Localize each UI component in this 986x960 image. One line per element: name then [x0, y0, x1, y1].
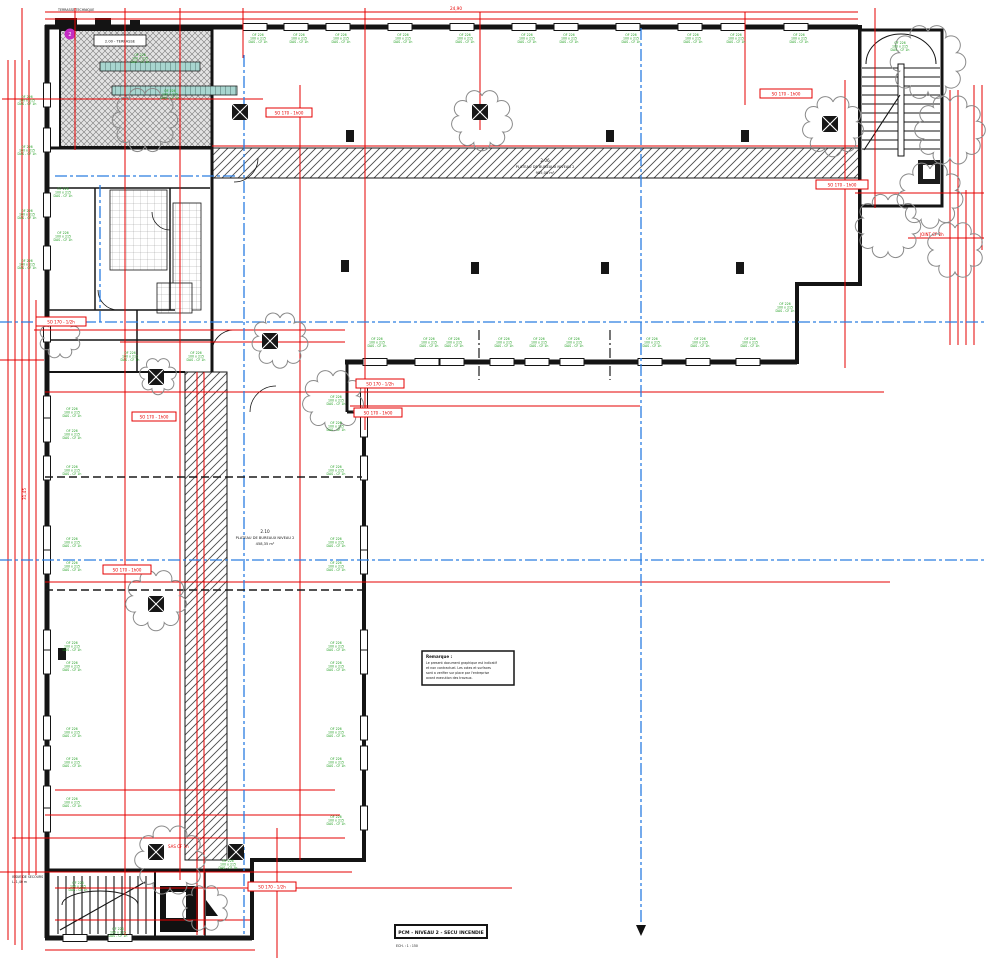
exit-label-2: L. 1,40 m — [12, 880, 27, 884]
note-line: et non contractuel. Les cotes et surface… — [426, 666, 491, 670]
window-label: OF 226100 x 215DAS - CF 1h — [518, 33, 537, 44]
window-marker — [415, 359, 439, 366]
note-box: Remarque : Le present document graphique… — [422, 651, 514, 685]
window-marker — [44, 716, 51, 740]
note-line: sont a verifier sur place par l'entrepri… — [426, 671, 489, 675]
title-block: PCM - NIVEAU 2 - SECU INCENDIE ECH. : 1 … — [395, 925, 487, 948]
window-label: OF 226100 x 215DAS - CF 1h — [420, 337, 439, 348]
column-marker — [741, 130, 749, 142]
window-label: OF 226100 x 215DAS - CF 1h — [622, 33, 641, 44]
window-label: OF 226100 x 215DAS - CF 1h — [790, 33, 809, 44]
fire-rating-label: SO 170 - 1h00 — [113, 567, 142, 572]
window-marker — [326, 24, 350, 31]
window-label: OF 226100 x 215DAS - CF 1h — [69, 881, 88, 892]
window-label: OF 226100 x 215DAS - CF 1h — [63, 537, 82, 548]
window-marker — [450, 24, 474, 31]
room-area: 458,35 m² — [256, 542, 275, 546]
plan-title: PCM - NIVEAU 2 - SECU INCENDIE — [398, 930, 483, 936]
column-marker — [606, 130, 614, 142]
fire-rating-label: SO 170 - 1h00 — [772, 91, 801, 96]
window-label: OF 226100 x 215DAS - CF 1h — [219, 859, 238, 870]
window-label: OF 226100 x 215DAS - CF 1h — [643, 337, 662, 348]
window-label: OF 226100 x 215DAS - CF 1h — [18, 145, 37, 156]
window-labels-wing-right: OF 226100 x 215DAS - CF 1hOF 226100 x 21… — [327, 395, 346, 826]
fire-rating-label: SO 170 - 1h00 — [364, 410, 393, 415]
window-label: OF 226100 x 215DAS - CF 1h — [63, 465, 82, 476]
window-marker — [784, 24, 808, 31]
fire-rating-label: SO 170 - 1/2h — [366, 381, 394, 386]
window-label: OF 226100 x 215DAS - CF 1h — [327, 727, 346, 738]
window-label: OF 226100 x 215DAS - CF 1h — [741, 337, 760, 348]
window-label: OF 226100 x 215DAS - CF 1h — [327, 465, 346, 476]
window-label: OF 226100 x 215DAS - CF 1h — [249, 33, 268, 44]
window-label: OF 226100 x 215DAS - CF 1h — [560, 33, 579, 44]
floor-plan-canvas: 2 2.00 - TERRASSE — [0, 0, 986, 960]
window-marker — [44, 550, 51, 574]
window-marker — [44, 808, 51, 832]
window-marker — [361, 746, 368, 770]
window-marker — [678, 24, 702, 31]
joint-label: JOINT CF 2h — [919, 232, 944, 237]
window-label: OF 226100 x 215DAS - CF 1h — [63, 407, 82, 418]
fire-rating-label: SO 170 - 1/2h — [258, 884, 286, 889]
smoke-vents — [148, 104, 838, 860]
window-marker — [440, 359, 464, 366]
window-marker — [63, 935, 87, 942]
window-label: OF 226100 x 215DAS - CF 1h — [327, 661, 346, 672]
window-labels-left-outside: OF 226100 x 215DAS - CF 1hOF 226100 x 21… — [18, 95, 37, 270]
note-title: Remarque : — [426, 654, 452, 659]
windows-top — [243, 24, 808, 31]
fire-labels-plain: JOINT CF 2h SAS CF 1h — [168, 232, 944, 849]
window-marker — [721, 24, 745, 31]
window-label: OF 226100 x 215DAS - CF 1h — [327, 757, 346, 768]
floor-plan-page: 2 2.00 - TERRASSE — [0, 0, 986, 960]
window-label: OF 226100 x 215DAS - CF 1h — [368, 337, 387, 348]
tiled-floor — [157, 283, 192, 313]
flow-arrow-icon — [636, 925, 646, 936]
column-marker — [736, 262, 744, 274]
window-marker — [361, 526, 368, 550]
window-marker — [284, 24, 308, 31]
window-label: OF 226100 x 215DAS - CF 1h — [456, 33, 475, 44]
window-marker — [44, 396, 51, 420]
window-marker — [361, 650, 368, 674]
window-marker — [44, 83, 51, 107]
window-marker — [243, 24, 267, 31]
window-marker — [44, 746, 51, 770]
terrace-label: 2.00 - TERRASSE — [105, 40, 136, 44]
window-label: OF 226100 x 215DAS - CF 1h — [18, 259, 37, 270]
note-line: avant execution des travaux. — [426, 676, 473, 680]
window-label: OF 226100 x 215DAS - CF 1h — [327, 537, 346, 548]
window-marker — [44, 193, 51, 217]
window-marker — [686, 359, 710, 366]
window-label: OF 226100 x 215DAS - CF 1h — [776, 302, 795, 313]
window-label: OF 226100 x 215DAS - CF 1h — [495, 337, 514, 348]
window-label: OF 226100 x 215DAS - CF 1h — [565, 337, 584, 348]
window-marker — [490, 359, 514, 366]
column-marker — [601, 262, 609, 274]
window-label: OF 226100 x 215DAS - CF 1h — [530, 337, 549, 348]
fire-rating-label: SO 170 - 1/2h — [47, 319, 75, 324]
window-marker — [44, 418, 51, 442]
window-label: OF 226100 x 215DAS - CF 1h — [63, 561, 82, 572]
column-marker — [471, 262, 479, 274]
terrace-top-label: TERRASSE TECHNIQUE — [57, 8, 94, 12]
corridor-hatch-vertical — [185, 372, 227, 860]
exit-label-1: ISSUE DE SECOURS — [12, 875, 43, 879]
window-label: OF 226100 x 215DAS - CF 1h — [327, 421, 346, 432]
window-label: OF 226100 x 215DAS - CF 1h — [445, 337, 464, 348]
window-marker — [554, 24, 578, 31]
plan-scale: ECH. : 1 : 150 — [396, 944, 418, 948]
fire-rating-label: SO 170 - 1h00 — [828, 182, 857, 187]
window-marker — [736, 359, 760, 366]
window-labels-top: OF 226100 x 215DAS - CF 1hOF 226100 x 21… — [249, 33, 809, 44]
window-label: OF 226100 x 215DAS - CF 1h — [327, 395, 346, 406]
window-marker — [560, 359, 584, 366]
windows-wing-bottom — [363, 359, 760, 366]
window-label: OF 226100 x 215DAS - CF 1h — [187, 351, 206, 362]
window-marker — [512, 24, 536, 31]
window-marker — [361, 806, 368, 830]
window-marker — [361, 716, 368, 740]
window-labels-wing-left: OF 226100 x 215DAS - CF 1hOF 226100 x 21… — [63, 407, 82, 808]
window-label: OF 226100 x 215DAS - CF 1h — [394, 33, 413, 44]
note-line: Le present document graphique est indica… — [426, 661, 498, 665]
window-label: OF 226100 x 215DAS - CF 1h — [327, 815, 346, 826]
window-label: OF 226100 x 215DAS - CF 1h — [54, 231, 73, 242]
window-label: OF 226100 x 215DAS - CF 1h — [63, 757, 82, 768]
window-label: OF 226100 x 215DAS - CF 1h — [63, 641, 82, 652]
sas-label: SAS CF 1h — [168, 844, 189, 849]
window-label: OF 226100 x 215DAS - CF 1h — [691, 337, 710, 348]
window-label: OF 226100 x 215DAS - CF 1h — [63, 727, 82, 738]
window-label: OF 226100 x 215DAS - CF 1h — [18, 209, 37, 220]
roof-grating — [100, 62, 200, 71]
column-marker — [346, 130, 354, 142]
window-label: OF 226100 x 215DAS - CF 1h — [290, 33, 309, 44]
window-marker — [44, 526, 51, 550]
window-marker — [388, 24, 412, 31]
revision-cloud — [452, 91, 513, 151]
dimension-text-left: 31,45 — [22, 488, 27, 500]
room-area: 985,00 m² — [536, 171, 555, 175]
window-label: OF 226100 x 215DAS - CF 1h — [332, 33, 351, 44]
fire-rating-label: SO 170 - 1h00 — [275, 110, 304, 115]
triangle-symbol — [206, 900, 218, 916]
window-marker — [44, 246, 51, 270]
window-marker — [525, 359, 549, 366]
window-marker — [44, 128, 51, 152]
window-label: OF 226100 x 215DAS - CF 1h — [327, 561, 346, 572]
windows-left — [44, 83, 51, 832]
tiled-floor — [110, 190, 167, 270]
room-number: 2.06 — [540, 158, 550, 163]
joint-lines — [45, 330, 610, 590]
room-number: 2.10 — [260, 529, 270, 534]
window-label: OF 226100 x 215DAS - CF 1h — [63, 661, 82, 672]
window-label: OF 226100 x 215DAS - CF 1h — [18, 95, 37, 106]
column-marker — [341, 260, 349, 272]
detail-marker-number: 2 — [68, 32, 71, 38]
window-label: OF 226100 x 215DAS - CF 1h — [63, 797, 82, 808]
window-label: OF 226100 x 215DAS - CF 1h — [63, 429, 82, 440]
room-name: PLATEAU DE BUREAUX NIVEAU 2 — [236, 536, 295, 540]
window-marker — [44, 786, 51, 810]
window-labels-wing-bottom: OF 226100 x 215DAS - CF 1hOF 226100 x 21… — [368, 337, 760, 348]
dimension-text-top: 24,90 — [450, 6, 462, 11]
window-label: OF 226100 x 215DAS - CF 1h — [327, 641, 346, 652]
window-marker — [363, 359, 387, 366]
window-label: OF 226100 x 215DAS - CF 1h — [684, 33, 703, 44]
room-name: PLATEAU DE BUREAUX NIVEAU 2 — [516, 165, 575, 169]
window-marker — [616, 24, 640, 31]
window-marker — [44, 650, 51, 674]
window-marker — [361, 550, 368, 574]
fire-rating-label: SO 170 - 1h00 — [140, 414, 169, 419]
window-label: OF 226100 x 215DAS - CF 1h — [727, 33, 746, 44]
